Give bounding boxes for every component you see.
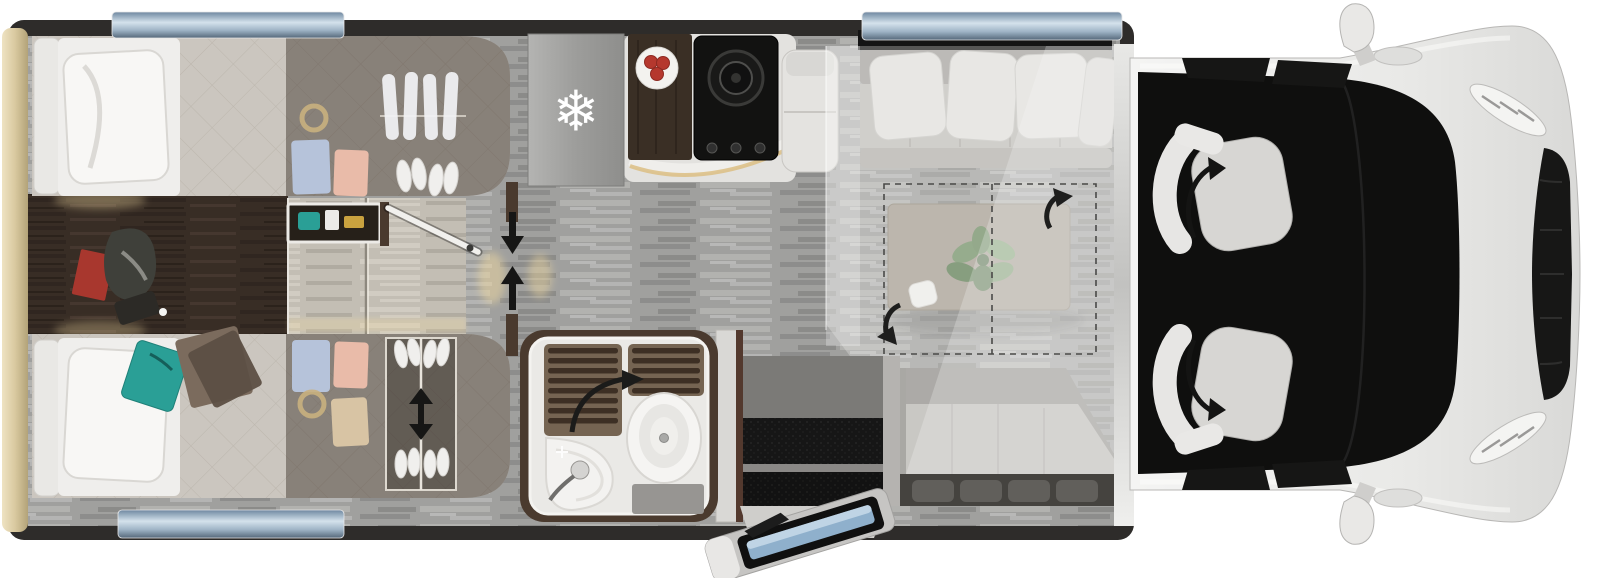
folded-shirt-pink xyxy=(333,341,369,388)
door-landing xyxy=(743,356,883,418)
rear-bedroom xyxy=(28,36,510,498)
roof-trim xyxy=(1374,489,1422,507)
washroom-mat xyxy=(632,484,704,514)
corridor-glow xyxy=(478,252,506,304)
rear-bed-window-top xyxy=(112,12,344,38)
folded-shirt-beige xyxy=(331,397,369,447)
overhead-wardrobe-upper xyxy=(286,36,510,197)
shoe-rack xyxy=(386,337,456,490)
lower-bed-window-bottom xyxy=(118,510,344,538)
corridor-glow xyxy=(528,254,552,298)
headboard-upper xyxy=(34,38,60,194)
burner-cap xyxy=(731,73,741,83)
shelf-item-teal xyxy=(298,212,320,230)
door-post-right xyxy=(883,356,900,506)
folded-shirt-blue xyxy=(291,139,331,194)
cab xyxy=(1130,4,1580,545)
lounge-window-top xyxy=(862,12,1122,40)
kitchen: ❄ xyxy=(528,34,838,186)
pillow-upper xyxy=(63,49,170,184)
mat-texture xyxy=(743,418,883,464)
door-pocket-wall-bottom xyxy=(506,314,518,356)
shelf-item-yellow xyxy=(344,216,364,228)
hob xyxy=(694,36,778,160)
overhead-wardrobe-lower xyxy=(286,334,510,498)
toilet-drain xyxy=(660,434,669,443)
motorhome-floorplan: ❄ xyxy=(0,0,1600,578)
floor-bag xyxy=(104,228,156,299)
roof-trim xyxy=(1374,47,1422,65)
entrance xyxy=(701,330,900,578)
hob-knobs xyxy=(707,143,765,153)
rear-wall-panel xyxy=(2,28,28,532)
floor-spotlight xyxy=(159,308,167,316)
bedside-shelf xyxy=(288,204,380,242)
door-post-left xyxy=(716,330,738,522)
step-divider xyxy=(743,464,883,472)
door-post-trim xyxy=(736,330,743,522)
folded-shirt-blue xyxy=(292,340,330,392)
headboard-lower xyxy=(34,340,60,496)
door-handle xyxy=(467,245,474,252)
bed-edge-band xyxy=(826,46,860,346)
snowflake-icon: ❄ xyxy=(553,80,600,145)
folded-shirt-pink xyxy=(333,149,369,196)
toilet xyxy=(627,393,701,483)
washroom xyxy=(520,330,718,522)
shelf-item-white xyxy=(325,210,339,230)
step-glow xyxy=(288,318,466,332)
